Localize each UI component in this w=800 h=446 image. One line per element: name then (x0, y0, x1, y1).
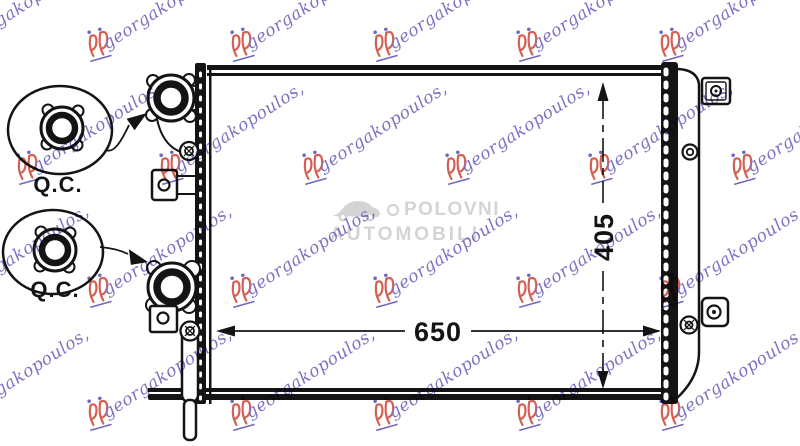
qc-detail-ring (42, 237, 68, 263)
qc-detail-ring (49, 115, 75, 141)
right-tank-outline (676, 69, 699, 399)
dim-arrow-left (216, 326, 235, 337)
bottom-frame-line-2 (148, 394, 675, 400)
dim-width-label: 650 (414, 317, 462, 347)
bracket-hole (159, 180, 170, 191)
radiator-technical-drawing: Q.C. Q.C. 650 405 (0, 0, 800, 446)
qc-label-bottom: Q.C. (30, 277, 79, 302)
left-header-inner-line (209, 65, 212, 404)
inlet-pipe-line (157, 119, 181, 152)
screw-top-left (180, 142, 198, 160)
bracket-hole (158, 313, 169, 324)
qc-label-top: Q.C. (33, 172, 82, 197)
inlet-connector-top-left (146, 74, 198, 152)
dim-height-label: 405 (589, 213, 619, 261)
bracket-right-top (702, 78, 730, 104)
bottom-frame-line (148, 388, 672, 392)
inlet-ring (157, 84, 185, 112)
dim-arrow-right (643, 326, 661, 337)
bracket-bottom-left (150, 306, 177, 332)
drain-plug-bottom-left (181, 322, 200, 441)
outlet-ring (157, 272, 187, 302)
radiator-diagram-canvas: Q.C. Q.C. 650 405 (0, 0, 800, 446)
bracket-right-bottom (702, 298, 728, 326)
qc-callout-top (8, 86, 147, 174)
screws-right-header (681, 145, 698, 334)
dim-arrow-up (598, 82, 609, 101)
qc-leader-arrowhead (129, 249, 148, 265)
top-frame-line-2 (207, 73, 663, 76)
bracket-left-middle (152, 170, 197, 200)
qc-leader-arrowhead (127, 113, 147, 130)
top-frame-line (207, 65, 663, 70)
dim-arrow-down (598, 371, 609, 389)
